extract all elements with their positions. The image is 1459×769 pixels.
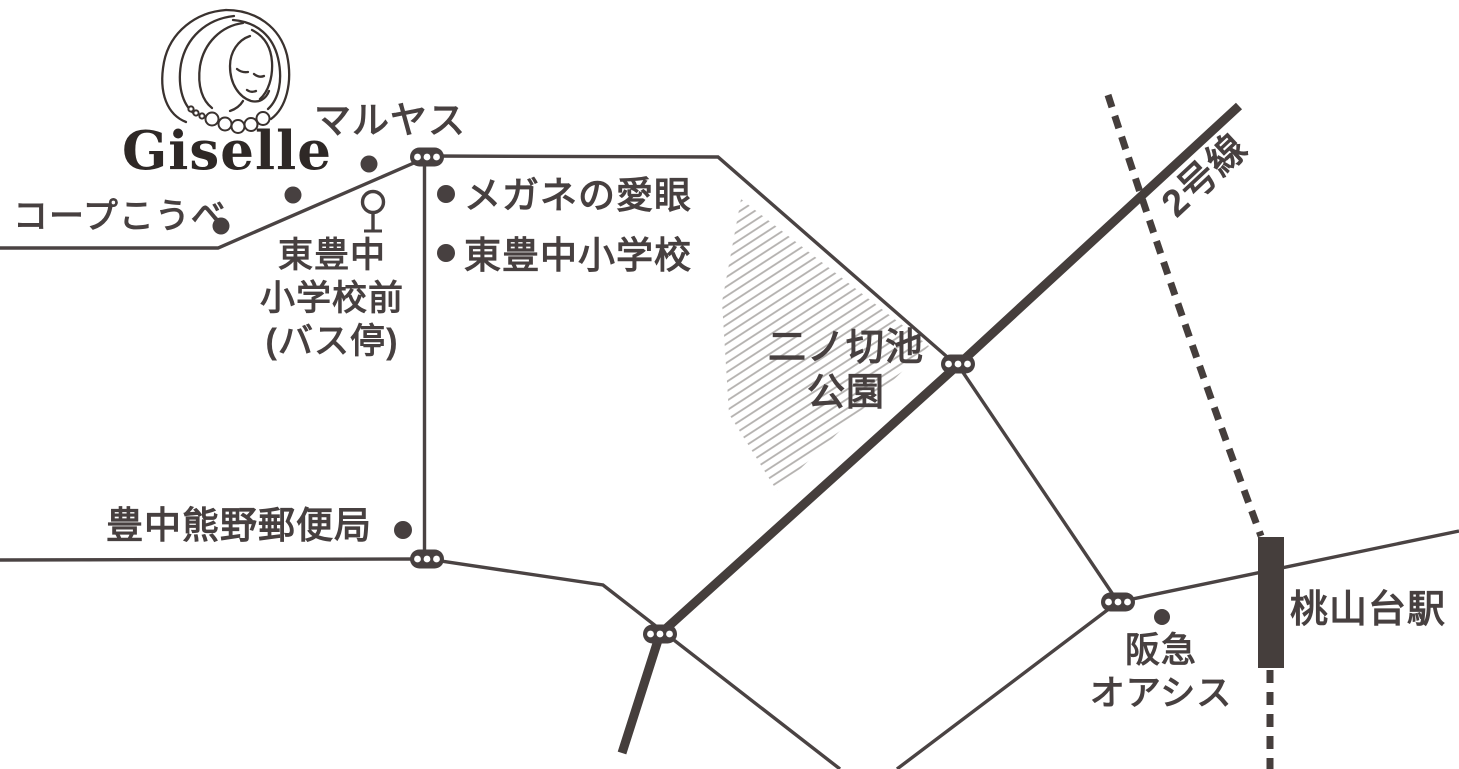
label-coop-kobe: コープこうべ — [13, 197, 227, 238]
label-park: 二ノ切池 公園 — [768, 326, 924, 416]
label-hankyu-oasis: 阪急 オアシス — [1090, 629, 1233, 715]
traffic-light-icon — [410, 148, 444, 167]
place-dot — [437, 185, 455, 203]
place-dot — [437, 244, 455, 262]
label-maruyasu: マルヤス — [314, 100, 466, 143]
label-momoyamadai-station: 桃山台駅 — [1290, 588, 1446, 632]
place-dot — [394, 521, 412, 539]
brand-label: Giselle — [122, 124, 332, 180]
map-canvas — [0, 0, 1459, 769]
traffic-light-icon — [1101, 593, 1135, 612]
place-dot — [1154, 609, 1170, 625]
road-park-east — [958, 365, 1118, 602]
label-megane-aigan: メガネの愛眼 — [464, 175, 692, 218]
traffic-light-icon — [941, 355, 975, 374]
station-bar-icon — [1258, 537, 1284, 668]
place-dot — [285, 187, 302, 204]
bus-stop-icon — [363, 192, 384, 232]
traffic-light-icon — [643, 625, 677, 644]
traffic-light-icon — [410, 550, 444, 569]
label-bus-stop: 東豊中 小学校前 (バス停) — [260, 234, 404, 363]
place-dots — [213, 156, 1171, 626]
label-post-office: 豊中熊野郵便局 — [106, 505, 372, 548]
place-dot — [361, 156, 378, 173]
portrait-icon — [162, 10, 289, 133]
label-higashitoyonaka-elementary: 東豊中小学校 — [464, 235, 692, 278]
access-map: Giselle マルヤス コープこうべ メガネの愛眼 東豊中小学校 東豊中 小学… — [0, 0, 1459, 769]
